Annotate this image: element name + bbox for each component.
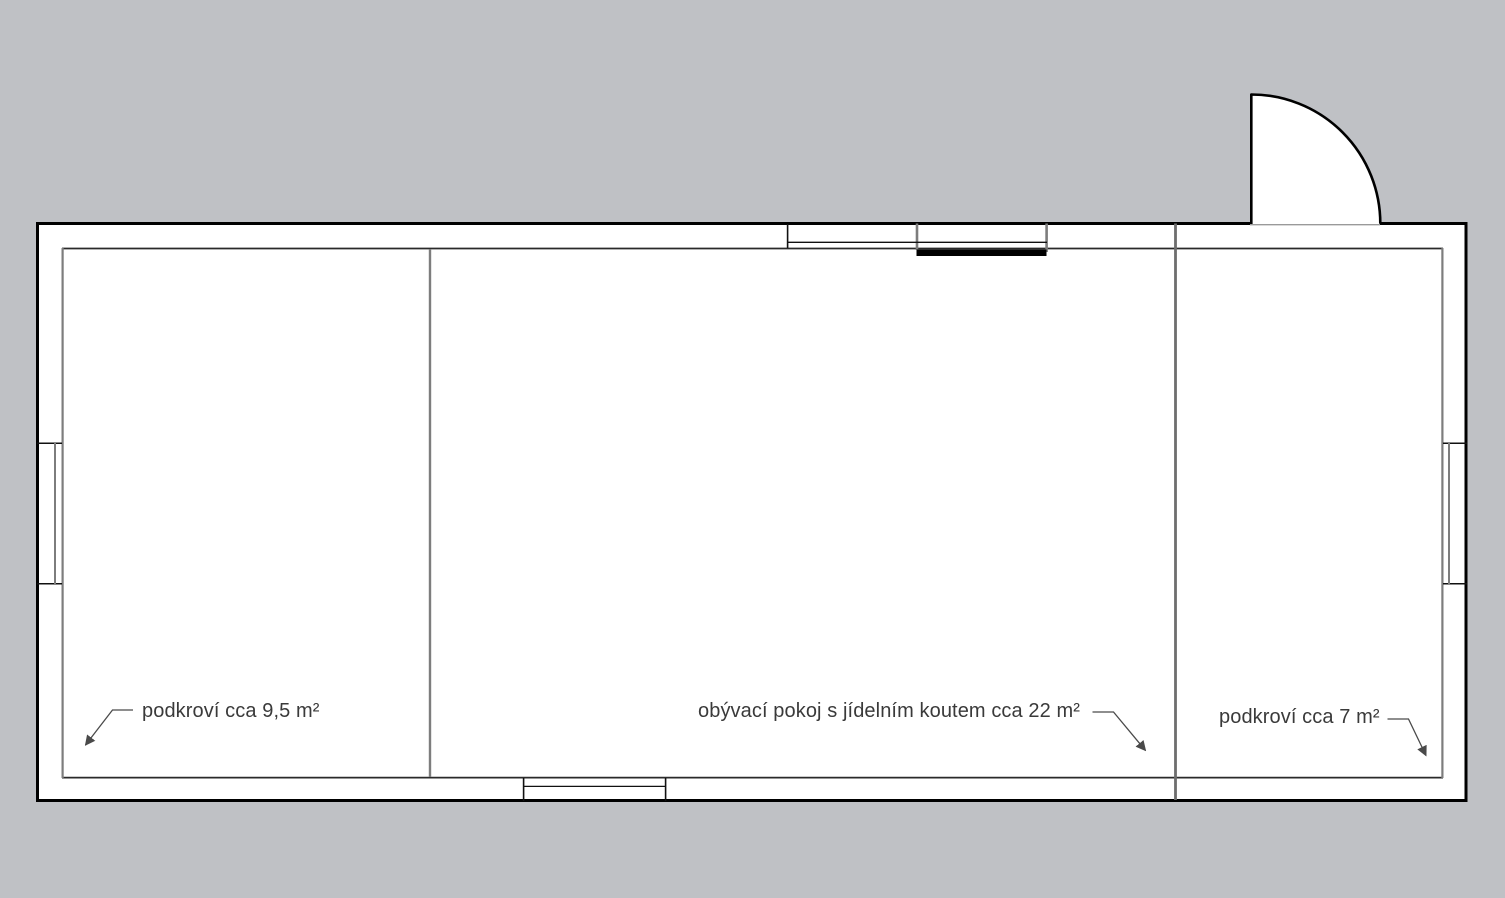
floor-plan-drawing: podkroví cca 9,5 m² obývací pokoj s jíde… [0, 0, 1505, 898]
sill-bar [917, 250, 1047, 257]
door-leaf-and-swing-arc [1251, 95, 1380, 225]
room-label-living-room: obývací pokoj s jídelním koutem cca 22 m… [698, 700, 1080, 722]
room-label-right-attic: podkroví cca 7 m² [1219, 706, 1380, 728]
floor-plan: podkroví cca 9,5 m² obývací pokoj s jíde… [0, 0, 1505, 898]
entrance-door [1250, 95, 1380, 228]
room-label-left-attic: podkroví cca 9,5 m² [142, 700, 320, 722]
